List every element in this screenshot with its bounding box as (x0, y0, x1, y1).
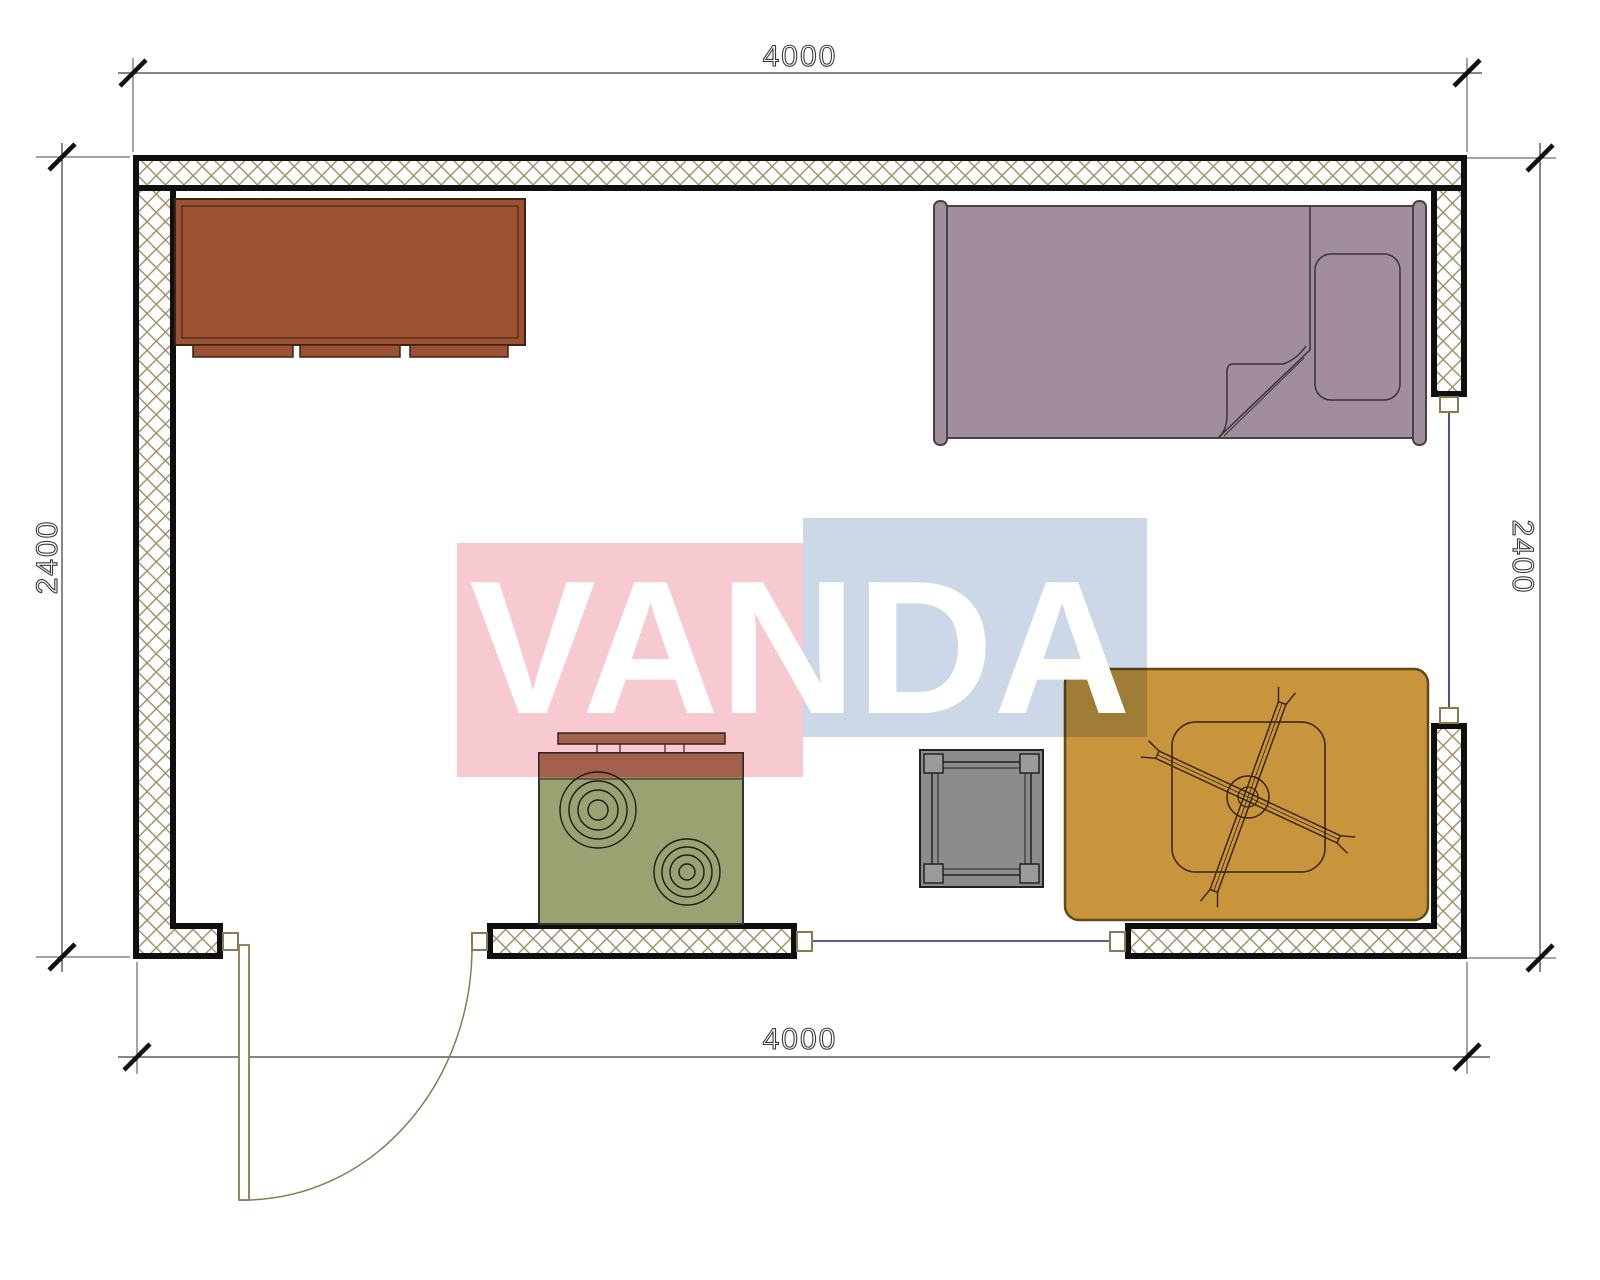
window-cap-bottom-right (1110, 932, 1125, 951)
table-leg (1020, 754, 1039, 773)
table-leg (1020, 864, 1039, 883)
dresser-foot (300, 345, 400, 357)
floor-plan-page: 4000 4000 2400 2400 (0, 0, 1600, 1280)
dimension-top-text: 4000 (763, 40, 838, 73)
table-leg (924, 754, 943, 773)
door-swing-arc (244, 947, 472, 1200)
dresser (175, 199, 525, 357)
door-leaf (239, 945, 249, 1200)
dimension-bottom: 4000 (118, 962, 1490, 1074)
wall-top (136, 158, 1464, 188)
dimension-bottom-text: 4000 (763, 1023, 838, 1056)
dimension-right-text: 2400 (1506, 520, 1539, 595)
watermark-text: VANDA (469, 542, 1130, 754)
wall-bottom-middle (490, 926, 794, 956)
door-jamb-cap-left (223, 933, 238, 950)
window-cap-right-top (1440, 397, 1458, 412)
dimension-top: 4000 (118, 40, 1482, 152)
dimension-right: 2400 (1467, 143, 1556, 972)
dresser-foot (410, 345, 508, 357)
dimension-left-text: 2400 (31, 520, 64, 595)
window-cap-bottom-left (797, 932, 812, 951)
bed (934, 201, 1426, 445)
bed-pillow (1315, 254, 1400, 400)
wall-right-upper (1434, 158, 1464, 394)
table-leg (924, 864, 943, 883)
bed-headboard-rail (1413, 201, 1426, 445)
door-jamb-cap-right (472, 933, 487, 950)
floor-plan-canvas: 4000 4000 2400 2400 (0, 0, 1600, 1280)
side-table (920, 750, 1043, 887)
window-cap-right-bottom (1440, 708, 1458, 723)
bed-footboard-rail (934, 201, 947, 445)
dimension-left: 2400 (31, 143, 130, 972)
dresser-body (175, 199, 525, 345)
dresser-foot (193, 345, 293, 357)
watermark: VANDA (457, 518, 1147, 777)
